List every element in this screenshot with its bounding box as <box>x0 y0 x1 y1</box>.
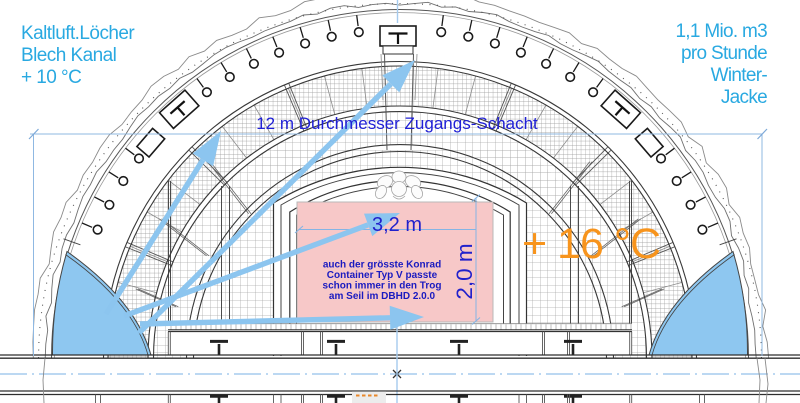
svg-text:pro Stunde: pro Stunde <box>681 43 767 64</box>
svg-text:auch der grösste Konrad: auch der grösste Konrad <box>323 260 441 271</box>
svg-text:Winter-: Winter- <box>711 65 768 86</box>
svg-text:Jacke: Jacke <box>721 87 767 108</box>
svg-text:3,2 m: 3,2 m <box>372 214 422 236</box>
svg-text:Blech Kanal: Blech Kanal <box>21 45 116 66</box>
svg-text:schon immer in den Trog: schon immer in den Trog <box>323 281 442 292</box>
svg-text:Kaltluft.Löcher: Kaltluft.Löcher <box>21 23 135 44</box>
svg-text:+ 16 °C: + 16 °C <box>522 220 660 268</box>
svg-text:am Seil im DBHD 2.0.0: am Seil im DBHD 2.0.0 <box>329 291 436 302</box>
svg-text:12 m Durchmesser Zugangs-Schac: 12 m Durchmesser Zugangs-Schacht <box>256 114 538 133</box>
svg-text:+ 10 °C: + 10 °C <box>21 67 81 88</box>
svg-text:Container Typ V passte: Container Typ V passte <box>327 270 438 281</box>
svg-text:2,0 m: 2,0 m <box>452 243 477 299</box>
svg-text:1,1 Mio. m3: 1,1 Mio. m3 <box>675 21 767 42</box>
